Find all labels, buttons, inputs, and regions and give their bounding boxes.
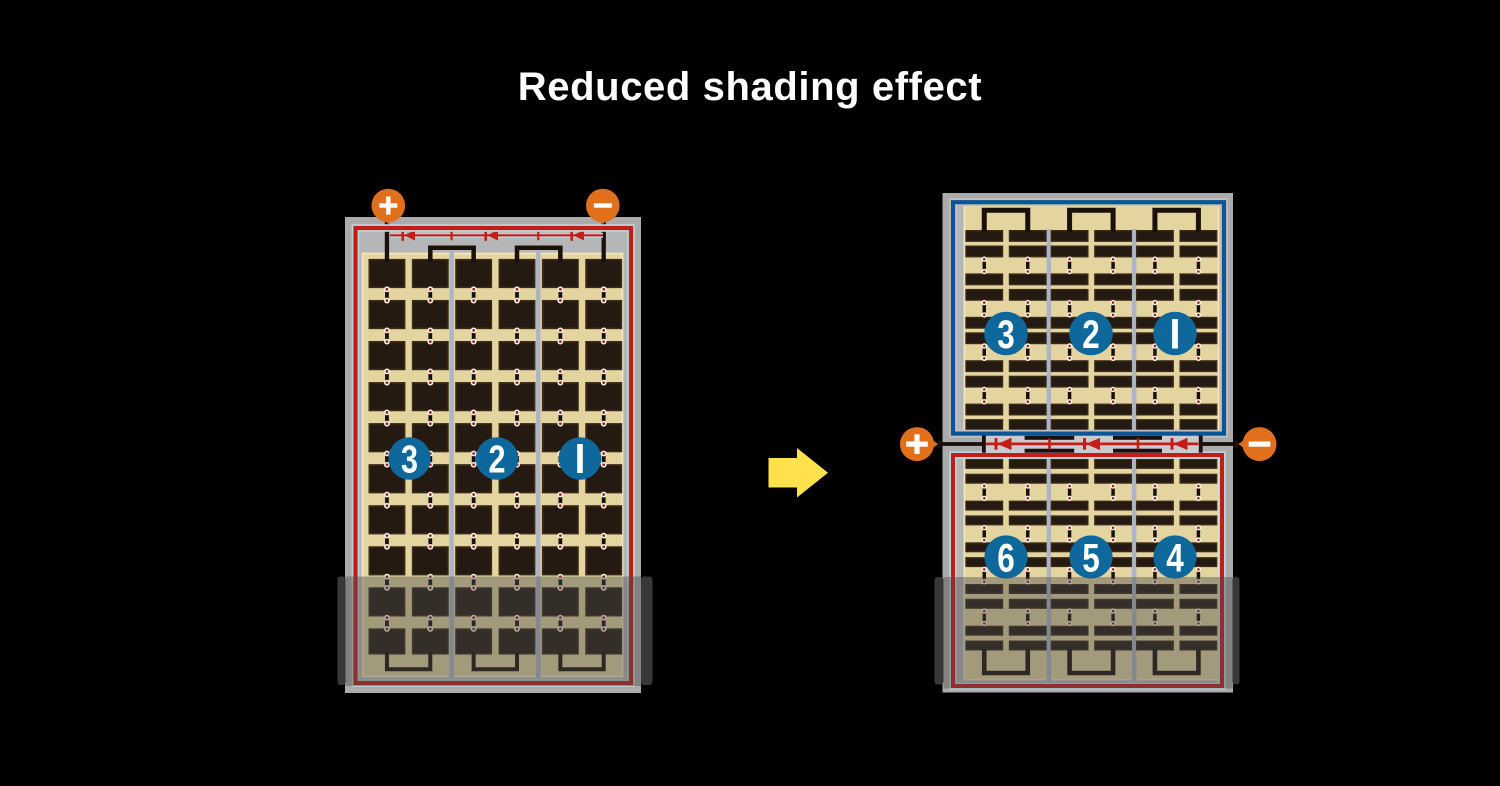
svg-text:5: 5 [1082, 536, 1100, 580]
svg-text:Reduced shading effect: Reduced shading effect [518, 65, 982, 109]
svg-text:3: 3 [997, 313, 1015, 357]
svg-text:4: 4 [1166, 536, 1184, 580]
svg-text:2: 2 [489, 439, 506, 482]
svg-text:3: 3 [401, 439, 418, 482]
svg-text:6: 6 [997, 536, 1015, 580]
svg-text:2: 2 [1082, 313, 1100, 357]
